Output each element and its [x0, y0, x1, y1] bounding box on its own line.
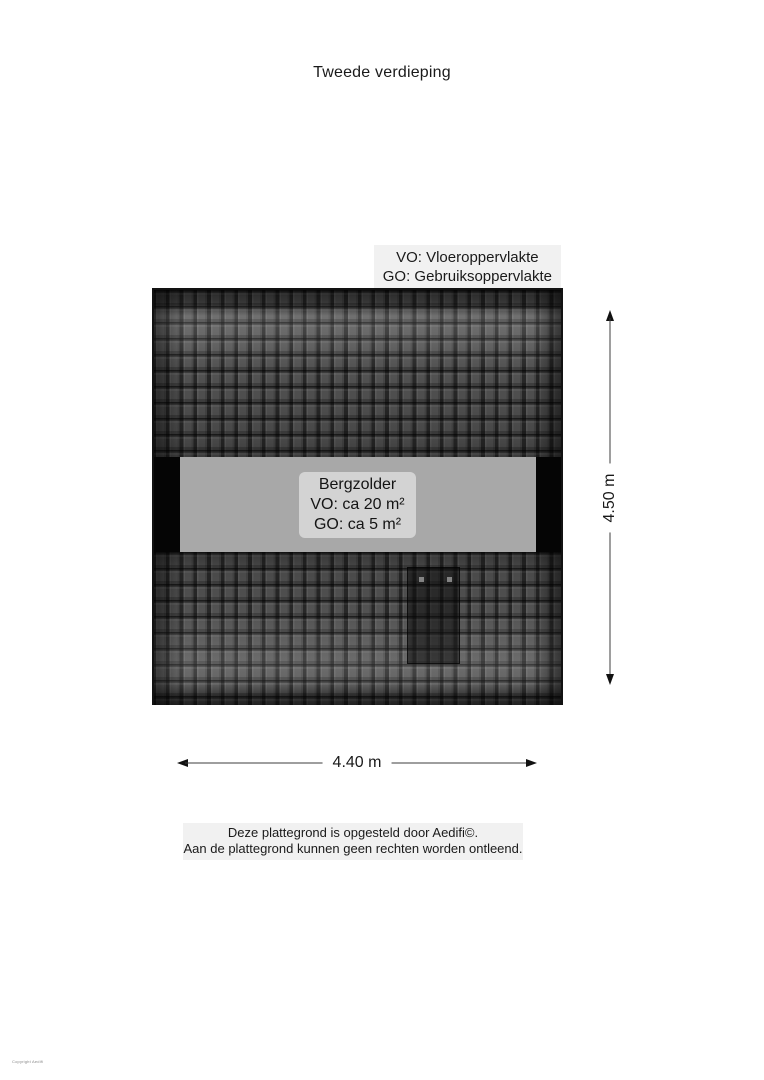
dimension-height-value: 4.50 m	[601, 463, 619, 532]
roof-plan: Bergzolder VO: ca 20 m² GO: ca 5 m²	[152, 288, 563, 705]
arrow-right-icon	[526, 759, 537, 767]
room-label: Bergzolder VO: ca 20 m² GO: ca 5 m²	[299, 472, 415, 538]
dimension-height: 4.50 m	[602, 310, 618, 685]
page-title: Tweede verdieping	[0, 64, 764, 82]
arrow-down-icon	[606, 674, 614, 685]
roof-window	[407, 567, 460, 664]
roof-section-bottom	[154, 552, 561, 705]
legend-line-vo: VO: Vloeroppervlakte	[383, 248, 552, 267]
disclaimer-line-1: Deze plattegrond is opgesteld door Aedif…	[183, 825, 523, 841]
window-hinge-left-icon	[419, 577, 424, 582]
window-hinge-right-icon	[447, 577, 452, 582]
dimension-width: 4.40 m	[177, 755, 537, 771]
roof-section-top	[154, 290, 561, 457]
legend: VO: Vloeroppervlakte GO: Gebruiksoppervl…	[374, 245, 561, 289]
copyright-text: Copyright Aedifi	[12, 1059, 43, 1064]
legend-line-go: GO: Gebruiksoppervlakte	[383, 267, 552, 286]
disclaimer-line-2: Aan de plattegrond kunnen geen rechten w…	[183, 841, 523, 857]
disclaimer: Deze plattegrond is opgesteld door Aedif…	[183, 823, 523, 860]
dimension-width-value: 4.40 m	[323, 754, 392, 772]
room-usable-area: GO: ca 5 m²	[310, 515, 404, 535]
wall-segment-right	[536, 457, 561, 552]
wall-segment-left	[154, 457, 180, 552]
attic-band: Bergzolder VO: ca 20 m² GO: ca 5 m²	[154, 457, 561, 552]
room-name: Bergzolder	[310, 475, 404, 495]
room-floor-area: VO: ca 20 m²	[310, 495, 404, 515]
